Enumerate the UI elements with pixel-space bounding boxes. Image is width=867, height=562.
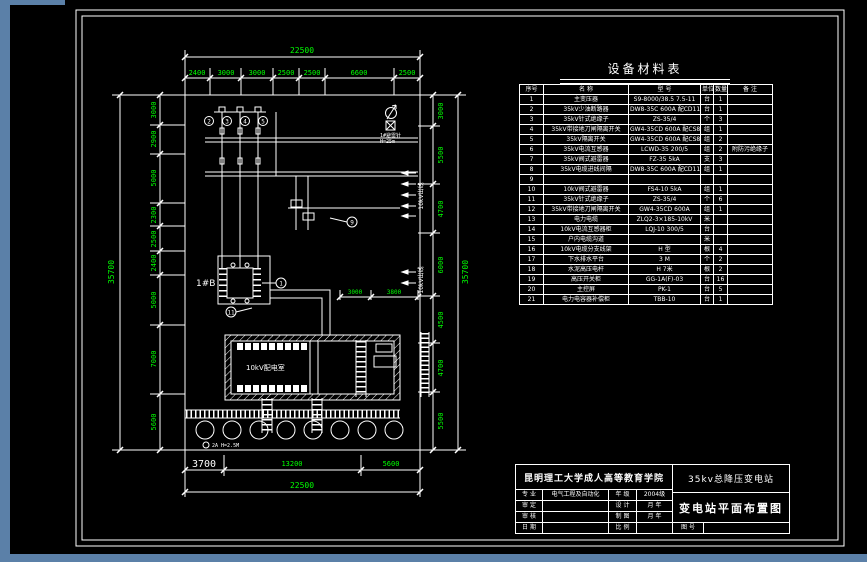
rod-note-2: H=25m	[380, 139, 395, 145]
svg-text:6000: 6000	[437, 257, 445, 274]
table-row: 9	[520, 175, 773, 185]
dim-left-overall: 35700	[107, 260, 116, 284]
svg-text:2400: 2400	[150, 255, 158, 272]
svg-text:3000: 3000	[218, 69, 235, 77]
callout-numbers: 2 3 4 5 1 11 9	[207, 119, 354, 317]
svg-text:4700: 4700	[437, 201, 445, 218]
svg-text:5000: 5000	[150, 170, 158, 187]
table-row: 10 10kV阀式避雷器 FS4-10 5kA 组 1	[520, 185, 773, 195]
cable-tray-right	[421, 332, 429, 397]
svg-text:9: 9	[350, 220, 354, 227]
table-row: 5 35kV隔离开关 GW4-35CD 600A 配CS8-6D 组 2	[520, 135, 773, 145]
svg-text:6600: 6600	[351, 69, 368, 77]
feeder-label-2: 10kV出线	[417, 266, 425, 293]
svg-text:5600: 5600	[150, 414, 158, 431]
figure-number-row: 图 号	[673, 523, 789, 533]
title-block-field-row: 审 核 制 图 月 年	[516, 512, 672, 523]
feeder-arrows	[402, 171, 416, 285]
svg-text:3800: 3800	[387, 289, 402, 296]
lightning-rod-symbol	[386, 105, 397, 130]
title-block-field-row: 专 业 电气工程及自动化 年 级 2004级	[516, 490, 672, 501]
svg-text:3000: 3000	[249, 69, 266, 77]
dim-3700: 3700	[192, 459, 216, 470]
svg-text:1: 1	[279, 281, 283, 288]
table-row: 12 35kV带接地刀闸隔离开关 GW4-35CD 600A 组 1	[520, 205, 773, 215]
table-row: 11 35kV针式绝缘子 ZS-35/4 个 6	[520, 195, 773, 205]
dim-right-overall: 35700	[461, 260, 470, 284]
svg-text:2500: 2500	[304, 69, 321, 77]
dimension-lines	[112, 50, 466, 497]
svg-text:2300: 2300	[150, 207, 158, 224]
svg-text:5: 5	[261, 119, 265, 126]
title-block-field-row: 审 定 设 计 月 年	[516, 501, 672, 512]
svg-text:3000: 3000	[348, 289, 363, 296]
outdoor-trench	[185, 410, 400, 418]
title-block-fields: 专 业 电气工程及自动化 年 级 2004级 审 定 设 计 月 年 审 核	[516, 490, 672, 533]
project-name: 35kv总降压变电站	[673, 465, 789, 493]
svg-text:11: 11	[227, 310, 235, 317]
svg-text:4700: 4700	[437, 360, 445, 377]
table-row: 3 35kV针式绝缘子 ZS-35/4 个 3	[520, 115, 773, 125]
busbars	[205, 138, 418, 208]
table-row: 20 主控屏 PK-1 台 5	[520, 285, 773, 295]
svg-text:4: 4	[243, 119, 247, 126]
table-row: 21 电力电容器补偿柜 TBB-10 台 1	[520, 295, 773, 305]
table-row: 16 10kV电缆分支线架 H 型 根 4	[520, 245, 773, 255]
table-row: 8 35kV电缆进线间隔 DW8-35C 600A 配CD11、CS8-6D 及…	[520, 165, 773, 175]
equipment-table: 序号 名 称 型 号 单位 数量 备 注 1 主变压器 S9-8000/38.5…	[519, 84, 772, 305]
svg-text:13200: 13200	[281, 460, 302, 468]
table-row: 6 35kV电流互感器 LCWD-35 200/5 组 2 附防污绝缘子	[520, 145, 773, 155]
svg-text:2500: 2500	[399, 69, 416, 77]
svg-text:5600: 5600	[383, 460, 400, 468]
equipment-table-title: 设备材料表	[560, 60, 730, 84]
building-label: 10kV配电室	[246, 363, 285, 372]
dim-bottom-overall: 22500	[290, 481, 314, 490]
svg-text:7000: 7000	[150, 351, 158, 368]
svg-text:5500: 5500	[437, 413, 445, 430]
school-name: 昆明理工大学成人高等教育学院	[516, 465, 672, 490]
svg-text:4500: 4500	[437, 312, 445, 329]
table-row: 2 35kV少油断路器 DW8-35C 600A 配CD11-3 台 1	[520, 105, 773, 115]
svg-text:3000: 3000	[150, 102, 158, 119]
cable-duct	[270, 290, 330, 335]
table-row: 13 电力电缆 ZLQ2-3×185-10kV 米	[520, 215, 773, 225]
svg-text:5000: 5000	[150, 292, 158, 309]
circle-note: 2A H=2.5M	[212, 443, 239, 449]
table-row: 18 水泥高压电杆 H 7米 根 2	[520, 265, 773, 275]
rod-note-1: 1#避雷针	[380, 132, 401, 139]
title-block-field-row: 日 期 比 例	[516, 523, 672, 533]
table-row: 4 35kV带接地刀闸隔离开关 GW4-35CD 600A 配CS8-6D机构 …	[520, 125, 773, 135]
cad-screenshot: 22500 2400 3000 3000 2500 2500 6600 2500…	[0, 0, 867, 562]
svg-text:3: 3	[225, 119, 229, 126]
svg-text:2400: 2400	[189, 69, 206, 77]
svg-text:2500: 2500	[150, 231, 158, 248]
dim-top-overall: 22500	[290, 46, 314, 55]
incoming-bays	[214, 107, 314, 268]
table-row: 14 10kV电流互感器柜 LQJ-10 300/5 台	[520, 225, 773, 235]
table-row: 19 高压开关柜 GG-1A(F)-03 台 16	[520, 275, 773, 285]
transformer	[218, 256, 270, 304]
title-block: 昆明理工大学成人高等教育学院 专 业 电气工程及自动化 年 级 2004级 审 …	[515, 464, 790, 534]
svg-text:5500: 5500	[437, 147, 445, 164]
svg-text:3000: 3000	[437, 103, 445, 120]
table-row: 7 35kV阀式避雷器 FZ-35 5kA 支 3	[520, 155, 773, 165]
table-row: 15 户内电缆沟道 米	[520, 235, 773, 245]
transformer-label: 1#B	[196, 279, 215, 289]
svg-text:2900: 2900	[150, 131, 158, 148]
svg-text:2500: 2500	[278, 69, 295, 77]
table-row: 17 下水排水平台 3 M 个 2	[520, 255, 773, 265]
drawing-name: 变电站平面布置图	[673, 493, 789, 523]
table-row: 1 主变压器 S9-8000/38.5 7.5-11 台 1	[520, 95, 773, 105]
dimension-labels: 22500 2400 3000 3000 2500 2500 6600 2500…	[107, 46, 470, 490]
svg-text:2: 2	[207, 119, 211, 126]
equipment-table-header: 序号 名 称 型 号 单位 数量 备 注	[520, 85, 773, 95]
feeder-label-1: 10kV出线	[417, 182, 425, 209]
